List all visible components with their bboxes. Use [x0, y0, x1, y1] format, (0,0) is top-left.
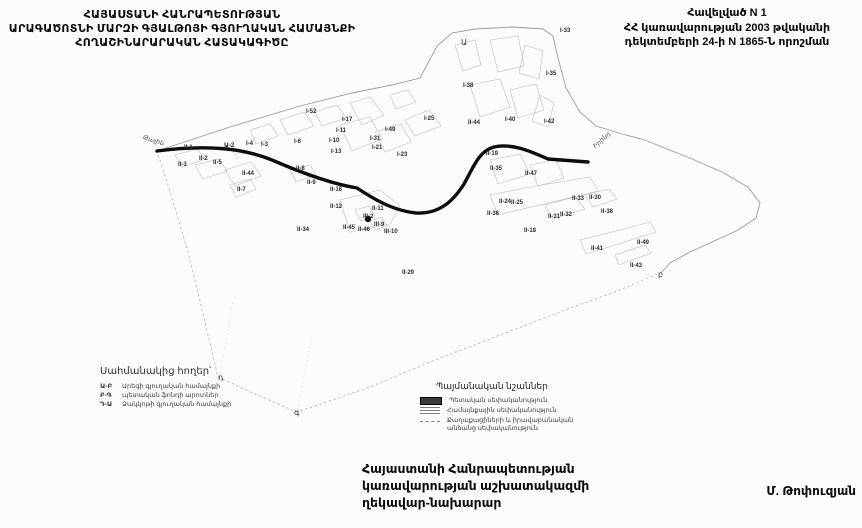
symbols-legend-title: Պայմանական նշաններ: [436, 381, 590, 392]
ownership-swatch-icon: [420, 421, 440, 422]
ownership-label: Համայնքային սեփականություն: [447, 407, 557, 415]
parcel-outlines: [175, 36, 656, 265]
adjacent-land-label: Արեգի գյուղական համայնքի: [122, 382, 220, 391]
ownership-swatch-icon: [420, 407, 440, 415]
adjacent-land-label: պետական ֆոնդի արոտներ: [122, 391, 218, 400]
adjacent-lands-items: Ա-Բ Արեգի գյուղական համայնքի Բ-Գ պետական…: [100, 382, 290, 409]
annex-line-2: ՀՀ կառավարության 2003 թվականի: [598, 21, 856, 36]
boundary-segment-code: Բ-Գ: [100, 391, 117, 400]
document-title: ՀԱՅԱՍՏԱՆԻ ՀԱՆՐԱՊԵՏՈՒԹՅԱՆ ԱՐԱԳԱԾՈՏՆԻ ՄԱՐԶ…: [8, 8, 356, 50]
settlement-dot: [365, 216, 371, 222]
scanned-map-page: I-33I-35I-38I-40I-42II-44I-25I-52I-17I-1…: [0, 0, 862, 528]
symbols-legend-item: Համայնքային սեփականություն: [420, 407, 590, 415]
ownership-swatch-icon: [420, 397, 442, 405]
annex-line-1: Հավելված N 1: [598, 6, 856, 21]
title-line-3: ՀՈՂԱՇԻՆԱՐԱՐԱԿԱՆ ՀԱՏԱԿԱԳԻԾԸ: [8, 36, 356, 50]
cadastral-map: [0, 0, 862, 528]
signature-name: Մ. Թոփուզյան: [730, 484, 856, 498]
boundary-segment-code: Ա-Բ: [100, 382, 117, 391]
annex-line-3: դեկտեմբերի 24-ի N 1865-Ն որոշման: [598, 35, 856, 50]
adjacent-land-item: Դ-Ա Ձակկոթի գյուղական համայնքի: [100, 400, 290, 409]
annex-reference: Հավելված N 1 ՀՀ կառավարության 2003 թվակա…: [598, 6, 856, 50]
boundary-segment-code: Դ-Ա: [100, 400, 117, 409]
adjacent-lands-title: Սահմանակից հողեր՝: [100, 366, 290, 377]
authority-line-3: ղեկավար-նախարար: [362, 495, 589, 512]
road-line: [157, 146, 588, 213]
symbols-legend-items: Պետական սեփականություն Համայնքային սեփակ…: [420, 397, 590, 433]
title-line-1: ՀԱՅԱՍՏԱՆԻ ՀԱՆՐԱՊԵՏՈՒԹՅԱՆ: [8, 8, 356, 22]
adjacent-land-item: Ա-Բ Արեգի գյուղական համայնքի: [100, 382, 290, 391]
ownership-label: Քաղաքացիների և իրավաբանական անձանց սեփակ…: [447, 417, 579, 433]
authority-line-2: կառավարության աշխատակազմի: [362, 478, 589, 495]
village-boundary-north: [157, 27, 760, 272]
adjacent-land-item: Բ-Գ պետական ֆոնդի արոտներ: [100, 391, 290, 400]
title-line-2: ԱՐԱԳԱԾՈՏՆԻ ՄԱՐԶԻ ԳՅԱԼԹՈՅԻ ԳՅՈՒՂԱԿԱՆ ՀԱՄԱ…: [8, 22, 356, 36]
symbols-legend-item: Քաղաքացիների և իրավաբանական անձանց սեփակ…: [420, 417, 590, 433]
ownership-label: Պետական սեփականություն: [449, 397, 547, 405]
adjacent-land-label: Ձակկոթի գյուղական համայնքի: [122, 400, 231, 409]
authority-line-1: Հայաստանի Հանրապետության: [362, 461, 589, 478]
symbols-legend-item: Պետական սեփականություն: [420, 397, 590, 405]
symbols-legend: Պայմանական նշաններ Պետական սեփականությու…: [420, 381, 590, 435]
adjacent-lands-legend: Սահմանակից հողեր՝ Ա-Բ Արեգի գյուղական հա…: [100, 366, 290, 409]
signing-authority: Հայաստանի Հանրապետության կառավարության ա…: [362, 461, 589, 512]
